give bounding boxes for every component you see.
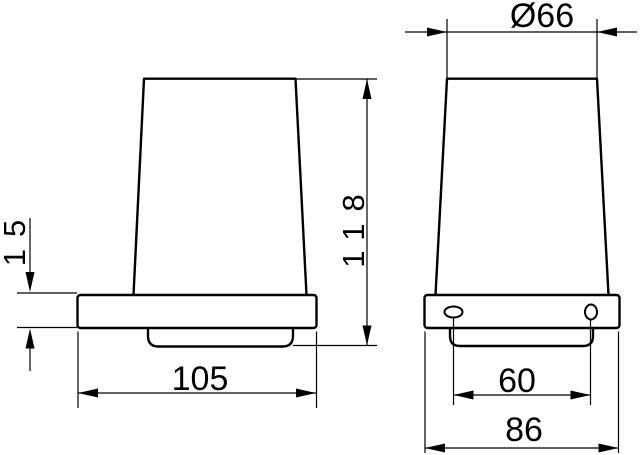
- front-view: [425, 79, 620, 346]
- dimension-hole-spacing: 60: [454, 319, 591, 406]
- side-view-cup-outline: [134, 79, 307, 295]
- width-arrow-left: [425, 444, 445, 453]
- dim-label-width: 86: [505, 411, 543, 449]
- mount-hole-slot-left: [445, 307, 463, 318]
- mount-hole-right: [585, 305, 597, 320]
- dim-label-depth: 105: [172, 360, 229, 398]
- drawing-svg: Ø66 118 15 105: [0, 0, 640, 455]
- front-view-cup-outline: [436, 79, 609, 295]
- dimension-plate-thickness: 15: [0, 208, 77, 371]
- height-arrow-top: [363, 79, 372, 99]
- side-view: [78, 79, 317, 347]
- dim-label-hole-spacing: 60: [498, 362, 536, 400]
- technical-drawing-canvas: Ø66 118 15 105: [0, 0, 640, 455]
- dimension-depth: 105: [78, 332, 317, 409]
- hole-spacing-arrow-right: [571, 391, 591, 400]
- diameter-arrow-left: [427, 28, 447, 37]
- front-view-glass-bottom: [450, 328, 593, 346]
- dimension-height: 118: [293, 79, 377, 346]
- height-arrow-bottom: [363, 326, 372, 346]
- dim-label-plate-thickness: 15: [0, 208, 32, 266]
- side-view-glass-bottom: [148, 328, 293, 347]
- depth-arrow-right: [296, 389, 316, 398]
- dim-label-diameter: Ø66: [510, 0, 574, 35]
- dimension-diameter: Ø66: [405, 0, 637, 78]
- thickness-extension-lines: [17, 293, 77, 328]
- thickness-arrow-top: [26, 272, 35, 292]
- side-view-mount-plate: [78, 295, 317, 328]
- hole-spacing-arrow-left: [454, 391, 474, 400]
- dim-label-height: 118: [336, 182, 371, 267]
- depth-arrow-left: [78, 389, 98, 398]
- diameter-arrow-right: [597, 28, 617, 37]
- width-arrow-right: [599, 444, 619, 453]
- thickness-arrow-bottom: [26, 329, 35, 349]
